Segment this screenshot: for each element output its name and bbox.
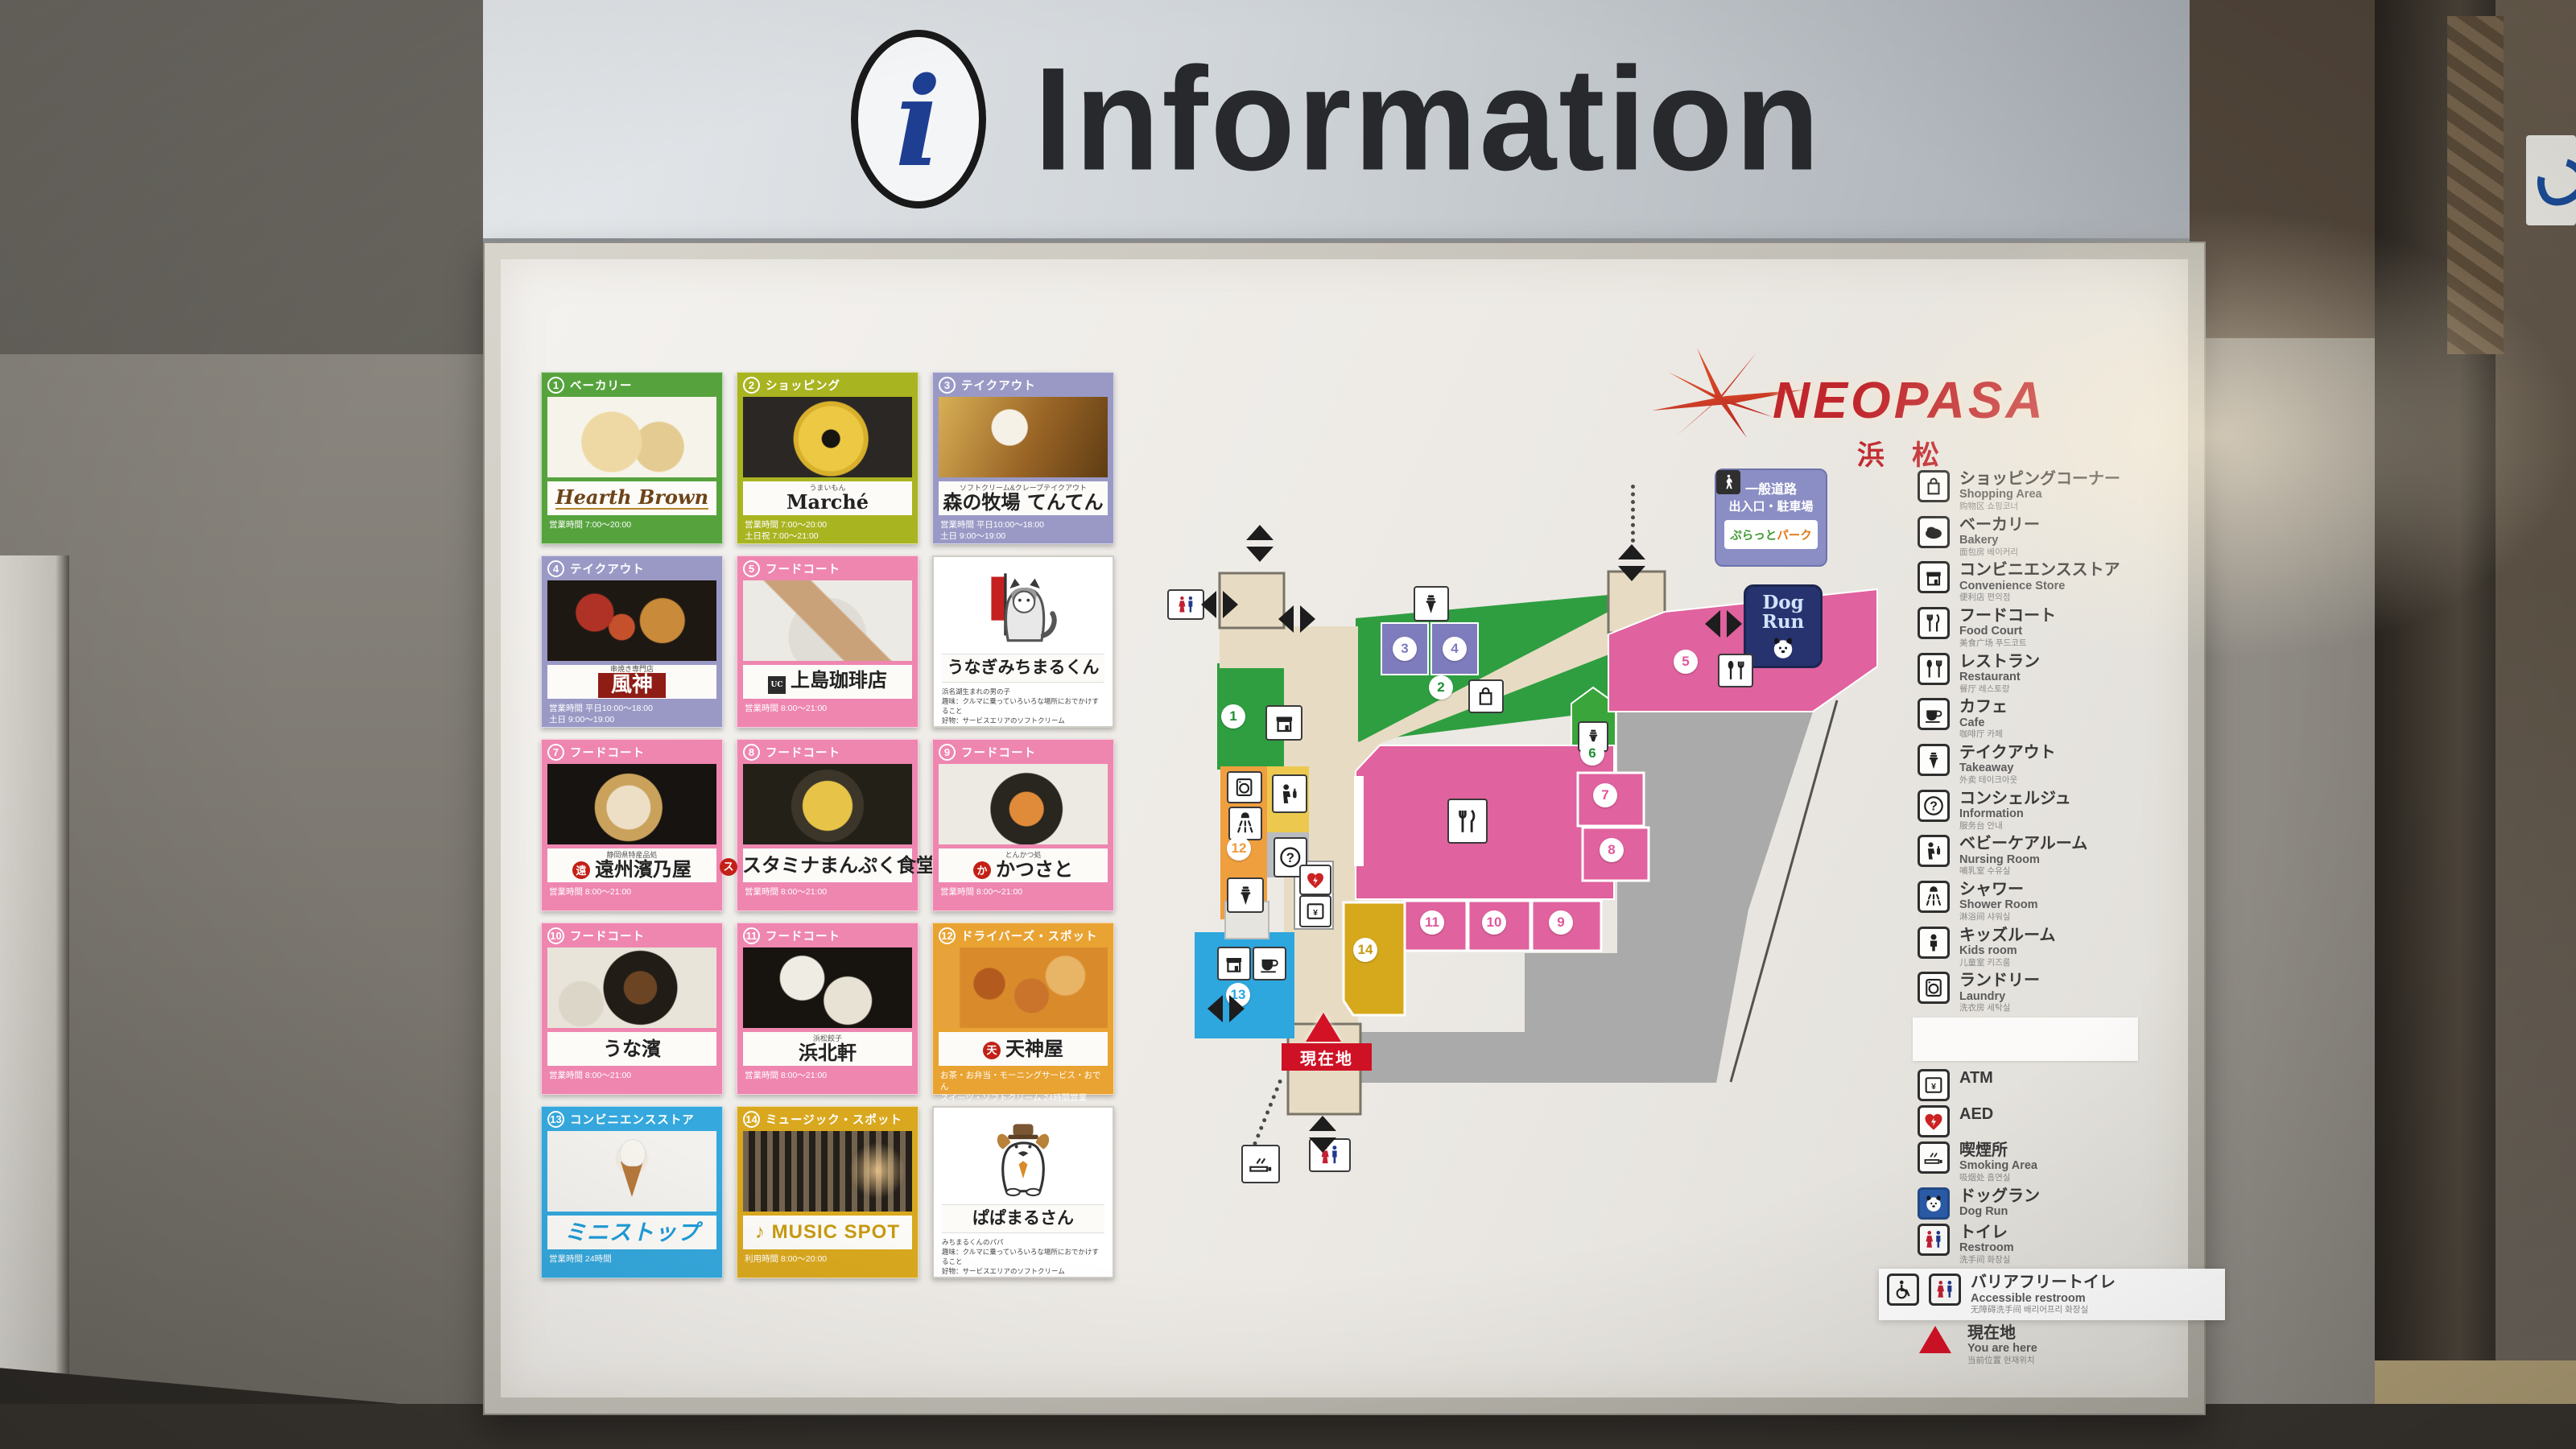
- legend-label-en: Smoking Area: [1959, 1159, 2037, 1173]
- map-marker-1: 1: [1221, 704, 1245, 729]
- atm-icon: ¥: [1918, 1069, 1950, 1101]
- floor-map: 現在地 一般道路 出入口・駐車場 ぷらっとパーク DogRun 12345678…: [1153, 460, 1893, 1185]
- card-category: ベーカリー: [570, 377, 633, 394]
- mascot-illustration: [942, 1114, 1104, 1201]
- shop-card: 12ドライバーズ・スポット天天神屋お茶・お弁当・モーニングサービス・おでんスイー…: [932, 923, 1114, 1095]
- shop-card: 8フードコートススタミナまんぷく食堂営業時間 8:00～21:00: [737, 739, 919, 911]
- legend-item-cafe: カフェCafe咖啡厅 카페: [1918, 698, 2183, 740]
- restaurant-icon: [1718, 654, 1753, 687]
- dog-icon: [1767, 634, 1799, 663]
- legend-label-jp: バリアフリートイレ: [1971, 1274, 2116, 1291]
- card-photo: [939, 764, 1108, 844]
- card-shop-name: ススタミナまんぷく食堂: [743, 848, 912, 882]
- card-hours: 営業時間 8:00～21:00: [542, 885, 722, 899]
- convenience-icon: [1217, 947, 1251, 980]
- information-board: 1ベーカリーHearth Brown営業時間 7:00～20:002ショッピング…: [483, 242, 2206, 1415]
- shopping-icon: [1468, 679, 1504, 713]
- card-hours: 営業時間 7:00～20:00土日祝 7:00～21:00: [737, 518, 918, 543]
- card-shop-name: 天天神屋: [939, 1032, 1108, 1066]
- store-icon: [1918, 561, 1950, 593]
- aed-icon: [1918, 1105, 1950, 1137]
- map-marker-9: 9: [1549, 910, 1573, 935]
- shop-card: 13コンビニエンスストアミニストップ営業時間 24時間: [541, 1106, 723, 1278]
- shop-card: 4テイクアウト串焼き専門店風神営業時間 平日10:00～18:00土日 9:00…: [541, 555, 723, 728]
- restroom-icon: [1167, 589, 1204, 620]
- card-shop-name: 静岡県特産品処遠遠州濱乃屋: [547, 848, 716, 882]
- shop-card: 9フードコートとんかつ処かかつさと営業時間 8:00～21:00: [932, 739, 1114, 911]
- softcream-icon: [1253, 947, 1286, 980]
- legend-label-en: Restroom: [1959, 1241, 2014, 1255]
- card-category: ショッピング: [766, 377, 840, 394]
- dog-run-sign: DogRun: [1744, 584, 1823, 668]
- card-hours: お茶・お弁当・モーニングサービス・おでんスイーツ・ソフトクリーム 24時間営業: [933, 1068, 1113, 1106]
- shop-card: 5フードコートUC上島珈琲店営業時間 8:00～21:00: [737, 555, 919, 728]
- card-photo: [939, 397, 1108, 477]
- card-category: フードコート: [570, 927, 645, 944]
- takeaway-icon: [1227, 877, 1264, 913]
- card-header: 2ショッピング: [737, 373, 918, 397]
- legend-label-jp: 喫煙所: [1959, 1141, 2037, 1159]
- card-shop-name: 串焼き専門店風神: [547, 665, 716, 699]
- legend-label-sub: 面包房 베이커리: [1959, 547, 2040, 558]
- mascot-name: ぱぱまるさん: [942, 1204, 1104, 1233]
- legend-label-jp: カフェ: [1959, 698, 2008, 716]
- wheelchair-icon: [1887, 1274, 1919, 1306]
- map-arrow-up-down: [1618, 544, 1645, 581]
- legend-item-takeaway: テイクアウトTakeaway外卖 테이크아웃: [1918, 744, 2183, 786]
- map-arrow-up-down: [1246, 525, 1274, 562]
- card-number: 3: [939, 377, 956, 394]
- legend-label-jp: ATM: [1959, 1069, 1993, 1087]
- card-number: 9: [939, 744, 956, 761]
- nursing-room-icon: [1272, 774, 1307, 813]
- card-shop-name: ソフトクリーム&クレープテイクアウト森の牧場 てんてん: [939, 481, 1108, 515]
- card-number: 2: [743, 377, 760, 394]
- legend-label-jp: コンビニエンスストア: [1959, 561, 2120, 579]
- brand-name: NEOPASA: [1773, 370, 2046, 430]
- card-category: フードコート: [570, 744, 645, 761]
- map-arrow-left-right: [1201, 591, 1238, 618]
- card-header: 3テイクアウト: [933, 373, 1113, 397]
- mascot-profile: みちまるくんのパパ趣味：クルマに乗っていろいろな場所におでかけすること好物：サー…: [934, 1236, 1113, 1279]
- legend-label-sub: 外卖 테이크아웃: [1959, 775, 2056, 786]
- legend-label-en: Laundry: [1959, 990, 2040, 1004]
- card-header: 12ドライバーズ・スポット: [933, 923, 1113, 947]
- legend-label-jp: ベビーケアルーム: [1959, 835, 2087, 852]
- card-category: テイクアウト: [961, 377, 1036, 394]
- map-marker-8: 8: [1600, 838, 1624, 862]
- card-category: コンビニエンスストア: [570, 1111, 695, 1128]
- card-photo: [743, 1131, 912, 1212]
- card-category: フードコート: [766, 744, 840, 761]
- legend-item-shopping-area: ショッピングコーナーShopping Area购物区 쇼핑코너: [1918, 470, 2183, 512]
- legend-label-sub: 哺乳室 수유실: [1959, 866, 2087, 877]
- legend-label-sub: 无障碍洗手间 배리어프리 화장실: [1971, 1305, 2116, 1315]
- legend-item-convenience-store: コンビニエンスストアConvenience Store便利店 편의점: [1918, 561, 2183, 603]
- card-photo: [547, 764, 716, 844]
- background-stairs: [2447, 16, 2504, 354]
- legend-label-sub: 当前位置 현재위치: [1967, 1356, 2037, 1366]
- legend-item-laundry: ランドリーLaundry洗衣房 세탁실: [1918, 972, 2183, 1013]
- card-number: 11: [743, 927, 760, 944]
- legend-label-en: Dog Run: [1959, 1205, 2040, 1219]
- card-header: 1ベーカリー: [542, 373, 722, 397]
- legend-label-jp: レストラン: [1959, 653, 2040, 671]
- shop-card: 7フードコート静岡県特産品処遠遠州濱乃屋営業時間 8:00～21:00: [541, 739, 723, 911]
- legend-label-jp: AED: [1959, 1105, 1993, 1123]
- card-photo: [743, 764, 912, 844]
- background-wall-left: [0, 354, 499, 1449]
- kids-icon: [1918, 927, 1950, 959]
- softcream-icon: [1918, 744, 1950, 776]
- legend-item-restaurant: レストランRestaurant餐厅 레스토랑: [1918, 653, 2183, 695]
- map-arrow-up-down: [1309, 1116, 1336, 1153]
- card-hours: 営業時間 8:00～21:00: [737, 1068, 918, 1083]
- legend-item-smoking-area: 喫煙所Smoking Area吸烟处 흡연실: [1918, 1141, 2183, 1183]
- laundry-icon: [1918, 972, 1950, 1004]
- legend-label-sub: 服务台 안내: [1959, 821, 2071, 832]
- legend-label-en: Convenience Store: [1959, 580, 2120, 593]
- card-shop-name: うな濱: [547, 1032, 716, 1066]
- smoking-icon: [1241, 1145, 1280, 1183]
- shower-icon: [1228, 807, 1262, 840]
- card-number: 1: [547, 377, 564, 394]
- card-header: 5フードコート: [737, 556, 918, 580]
- food-court-icon: [1447, 799, 1488, 844]
- legend-item-atm: ¥ATM: [1918, 1069, 2183, 1101]
- card-photo: [743, 947, 912, 1028]
- legend-label-en: Takeaway: [1959, 762, 2056, 775]
- card-category: フードコート: [961, 744, 1036, 761]
- shop-card: 1ベーカリーHearth Brown営業時間 7:00～20:00: [541, 372, 723, 544]
- nursing-icon: [1918, 835, 1950, 867]
- legend-item-you-are-here: 現在地You are here当前位置 현재위치: [1918, 1324, 2183, 1366]
- card-shop-subtitle: 串焼き専門店: [610, 666, 654, 673]
- card-header: 9フードコート: [933, 740, 1113, 764]
- shop-icon: [1265, 705, 1302, 741]
- legend-label-sub: 美食广场 푸드코트: [1959, 638, 2056, 649]
- card-hours: 営業時間 8:00～21:00: [933, 885, 1113, 899]
- card-photo: [743, 397, 912, 477]
- legend-label-en: Bakery: [1959, 534, 2040, 547]
- legend-label-sub: 洗手间 화장실: [1959, 1255, 2014, 1265]
- shop-card: 10フードコートうな濱営業時間 8:00～21:00: [541, 923, 723, 1095]
- legend-label-en: Information: [1959, 807, 2071, 821]
- card-shop-name: とんかつ処かかつさと: [939, 848, 1108, 882]
- legend-label-en: Food Court: [1959, 625, 2056, 638]
- card-hours: 利用時間 8:00～20:00: [737, 1252, 918, 1266]
- legend-label-en: Nursing Room: [1959, 853, 2087, 867]
- info-i-icon: i: [851, 30, 986, 208]
- mascot-illustration: [942, 563, 1104, 650]
- svg-text:¥: ¥: [1313, 908, 1318, 918]
- legend-label-jp: ショッピングコーナー: [1959, 470, 2120, 488]
- shop-card: 11フードコート浜松餃子浜北軒営業時間 8:00～21:00: [737, 923, 919, 1095]
- legend-label-jp: フードコート: [1959, 607, 2056, 625]
- card-photo: [547, 1131, 716, 1212]
- legend-label-sub: 洗衣房 세탁실: [1959, 1003, 2040, 1013]
- card-hours: 営業時間 平日10:00～18:00土日 9:00～19:00: [542, 701, 722, 727]
- card-number: 14: [743, 1111, 760, 1128]
- legend-item-information: ?コンシェルジュInformation服务台 안내: [1918, 790, 2183, 832]
- map-marker-14: 14: [1353, 938, 1377, 962]
- card-header: 13コンビニエンスストア: [542, 1107, 722, 1131]
- legend-label-en: Kids room: [1959, 944, 2055, 958]
- you-are-here-triangle: [1306, 1013, 1341, 1042]
- legend-label-en: Restaurant: [1959, 671, 2040, 684]
- map-marker-2: 2: [1429, 675, 1453, 700]
- map-marker-7: 7: [1593, 783, 1617, 807]
- legend-item-aed: AED: [1918, 1105, 2183, 1137]
- card-header: 7フードコート: [542, 740, 722, 764]
- card-photo: [743, 580, 912, 661]
- atm-icon: ¥: [1299, 895, 1331, 927]
- mascot-name: うなぎみちまるくん: [942, 654, 1104, 683]
- map-marker-6: 6: [1580, 741, 1604, 766]
- legend-label-sub: 购物区 쇼핑코너: [1959, 502, 2120, 512]
- aed-icon: [1299, 865, 1331, 895]
- card-photo: [547, 397, 716, 477]
- dog-icon: [1918, 1187, 1950, 1220]
- card-shop-name: うまいもんMarché: [743, 481, 912, 515]
- forkknife-icon: [1918, 607, 1950, 639]
- legend-label-en: Accessible restroom: [1971, 1292, 2116, 1306]
- map-marker-11: 11: [1420, 910, 1444, 935]
- legend-label-jp: 現在地: [1967, 1324, 2037, 1342]
- legend-label-sub: 吸烟处 흡연실: [1959, 1173, 2037, 1183]
- shower-icon: [1918, 881, 1950, 913]
- card-shop-name: 浜松餃子浜北軒: [743, 1032, 912, 1066]
- legend-item-accessible-restroom: バリアフリートイレAccessible restroom无障碍洗手间 배리어프리…: [1879, 1269, 2225, 1320]
- legend-label-jp: キッズルーム: [1959, 927, 2055, 944]
- card-hours: 営業時間 7:00～20:00: [542, 518, 722, 532]
- card-shop-name: ミニストップ: [547, 1216, 716, 1249]
- legend-label-jp: ランドリー: [1959, 972, 2040, 989]
- mascot-profile: 浜名湖生まれの男の子趣味：クルマに乗っていろいろな場所におでかけすること好物：サ…: [934, 685, 1113, 729]
- board-face: 1ベーカリーHearth Brown営業時間 7:00～20:002ショッピング…: [501, 259, 2188, 1397]
- card-number: 10: [547, 927, 564, 944]
- information-header-sign: i Information: [483, 0, 2190, 243]
- card-header: 14ミュージック・スポット: [737, 1107, 918, 1131]
- header-title: Information: [1034, 35, 1823, 204]
- card-category: フードコート: [766, 927, 840, 944]
- svg-text:¥: ¥: [1931, 1082, 1936, 1092]
- map-marker-4: 4: [1443, 637, 1467, 661]
- mascot-card: うなぎみちまるくん浜名湖生まれの男の子趣味：クルマに乗っていろいろな場所におでか…: [932, 555, 1114, 728]
- card-shop-name: UC上島珈琲店: [743, 665, 912, 699]
- legend-label-en: You are here: [1967, 1342, 2037, 1356]
- legend-label-en: Shopping Area: [1959, 488, 2120, 502]
- legend-item-dog-run: ドッグランDog Run: [1918, 1187, 2183, 1220]
- card-number: 7: [547, 744, 564, 761]
- card-photo: [547, 580, 716, 661]
- takeaway-icon: [1414, 586, 1449, 621]
- legend-label-jp: ドッグラン: [1959, 1187, 2040, 1205]
- card-header: 10フードコート: [542, 923, 722, 947]
- svg-text:?: ?: [1930, 799, 1938, 813]
- legend-item-kids-room: キッズルームKids room儿童室 키즈룸: [1918, 927, 2183, 968]
- restroom-icon: [1918, 1224, 1950, 1256]
- question-icon: ?: [1918, 790, 1950, 822]
- card-category: フードコート: [766, 560, 840, 577]
- legend-label-jp: テイクアウト: [1959, 744, 2056, 762]
- legend-label-en: Shower Room: [1959, 898, 2037, 912]
- card-header: 4テイクアウト: [542, 556, 722, 580]
- shop-card: 2ショッピングうまいもんMarché営業時間 7:00～20:00土日祝 7:0…: [737, 372, 919, 544]
- card-header: 11フードコート: [737, 923, 918, 947]
- mascot-card: ぱぱまるさんみちまるくんのパパ趣味：クルマに乗っていろいろな場所におでかけするこ…: [932, 1106, 1114, 1278]
- spoonfork-icon: [1918, 653, 1950, 685]
- legend-label-sub: 餐厅 레스토랑: [1959, 684, 2040, 695]
- card-shop-name: ♪ MUSIC SPOT: [743, 1216, 912, 1249]
- legend-item-nursing-room: ベビーケアルームNursing Room哺乳室 수유실: [1918, 835, 2183, 877]
- card-category: テイクアウト: [570, 560, 645, 577]
- legend-blank-entry: [1913, 1018, 2138, 1061]
- platto-park-logo: ぷらっとパーク: [1724, 520, 1818, 549]
- legend-label-sub: 便利店 편의점: [1959, 592, 2120, 603]
- card-category: ミュージック・スポット: [766, 1111, 902, 1128]
- map-marker-5: 5: [1674, 650, 1698, 674]
- legend-item-shower-room: シャワーShower Room淋浴间 샤워실: [1918, 881, 2183, 923]
- card-number: 5: [743, 560, 760, 577]
- card-hours: 営業時間 8:00～21:00: [737, 701, 918, 716]
- you-are-here-triangle-icon: [1919, 1326, 1951, 1353]
- left-pillar: [0, 555, 69, 1449]
- card-number: 4: [547, 560, 564, 577]
- shop-card-grid: 1ベーカリーHearth Brown営業時間 7:00～20:002ショッピング…: [541, 372, 1129, 1410]
- legend-label-en: Cafe: [1959, 716, 2008, 730]
- cup-icon: [1918, 698, 1950, 730]
- svg-text:?: ?: [1286, 850, 1294, 865]
- platto-line2: 出入口・駐車場: [1716, 497, 1826, 514]
- legend-label-jp: ベーカリー: [1959, 516, 2040, 534]
- bread-icon: [1918, 516, 1950, 548]
- legend-label-jp: コンシェルジュ: [1959, 790, 2071, 807]
- legend-label-sub: 淋浴间 샤워실: [1959, 912, 2037, 923]
- card-shop-name: Hearth Brown: [547, 481, 716, 515]
- card-photo: [939, 947, 1108, 1028]
- card-number: 8: [743, 744, 760, 761]
- legend: ショッピングコーナーShopping Area购物区 쇼핑코너ベーカリーBake…: [1918, 470, 2183, 1370]
- map-dotted-path: [1631, 485, 1635, 543]
- map-marker-12: 12: [1227, 836, 1251, 861]
- legend-item-bakery: ベーカリーBakery面包房 베이커리: [1918, 516, 2183, 558]
- card-hours: 営業時間 8:00～21:00: [737, 885, 918, 899]
- background-wall-topleft: [0, 0, 499, 378]
- card-header: 8フードコート: [737, 740, 918, 764]
- floor-map-shapes: [1153, 460, 1893, 1185]
- legend-label-sub: 儿童室 키즈룸: [1959, 958, 2055, 968]
- map-marker-3: 3: [1393, 637, 1417, 661]
- legend-label-jp: シャワー: [1959, 881, 2037, 898]
- card-category: ドライバーズ・スポット: [961, 927, 1097, 944]
- legend-item-restroom: トイレRestroom洗手间 화장실: [1918, 1224, 2183, 1265]
- map-arrow-left-right: [1278, 605, 1315, 633]
- bag-icon: [1918, 470, 1950, 502]
- shop-card: 3テイクアウトソフトクリーム&クレープテイクアウト森の牧場 てんてん営業時間 平…: [932, 372, 1114, 544]
- map-arrow-left-right: [1207, 995, 1245, 1022]
- legend-label-sub: 咖啡厅 카페: [1959, 729, 2008, 740]
- shop-card: 14ミュージック・スポット♪ MUSIC SPOT利用時間 8:00～20:00: [737, 1106, 919, 1278]
- map-arrow-left-right: [1705, 610, 1742, 638]
- card-number: 13: [547, 1111, 564, 1128]
- map-marker-10: 10: [1482, 910, 1506, 935]
- card-hours: 営業時間 24時間: [542, 1252, 722, 1266]
- card-hours: 営業時間 平日10:00～18:00土日 9:00～19:00: [933, 518, 1113, 543]
- card-hours: 営業時間 8:00～21:00: [542, 1068, 722, 1083]
- smoking-icon: [1918, 1141, 1950, 1174]
- family-restroom-icon: [1929, 1274, 1961, 1306]
- current-location-banner: 現在地: [1282, 1043, 1372, 1071]
- laundry-icon: [1227, 771, 1262, 803]
- card-photo: [547, 947, 716, 1028]
- legend-label-jp: トイレ: [1959, 1224, 2014, 1241]
- card-number: 12: [939, 927, 956, 944]
- walk-exit-icon: [1716, 470, 1740, 494]
- legend-item-food-court: フードコートFood Court美食广场 푸드코트: [1918, 607, 2183, 649]
